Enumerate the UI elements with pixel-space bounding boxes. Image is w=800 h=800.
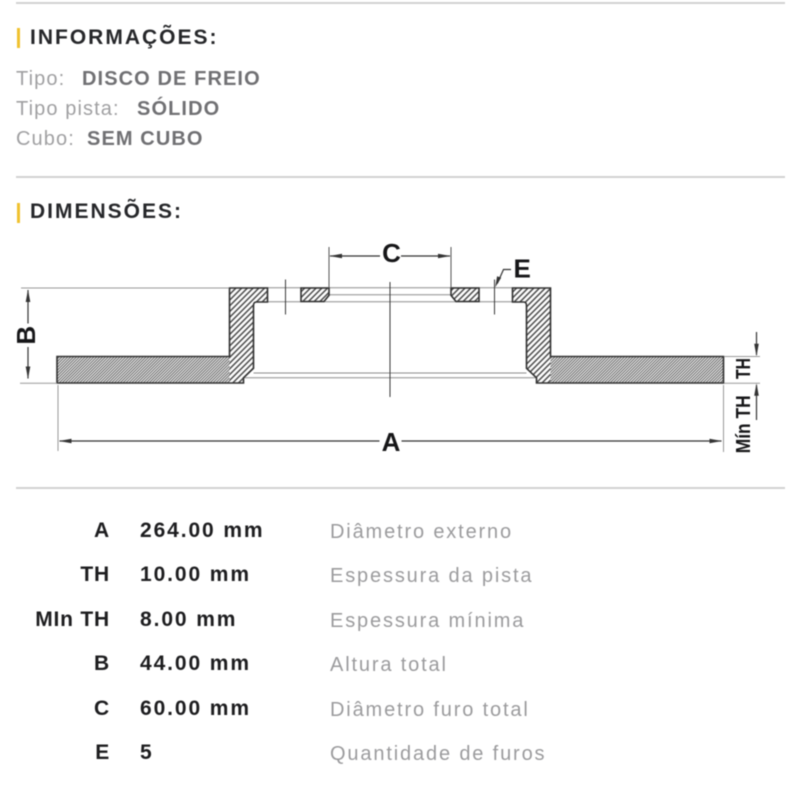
svg-text:C: C (382, 238, 401, 268)
svg-text:E: E (514, 254, 531, 284)
svg-text:Mín TH: Mín TH (733, 395, 755, 453)
svg-text:TH: TH (733, 358, 755, 379)
svg-text:A: A (382, 427, 401, 457)
svg-text:B: B (11, 326, 41, 345)
